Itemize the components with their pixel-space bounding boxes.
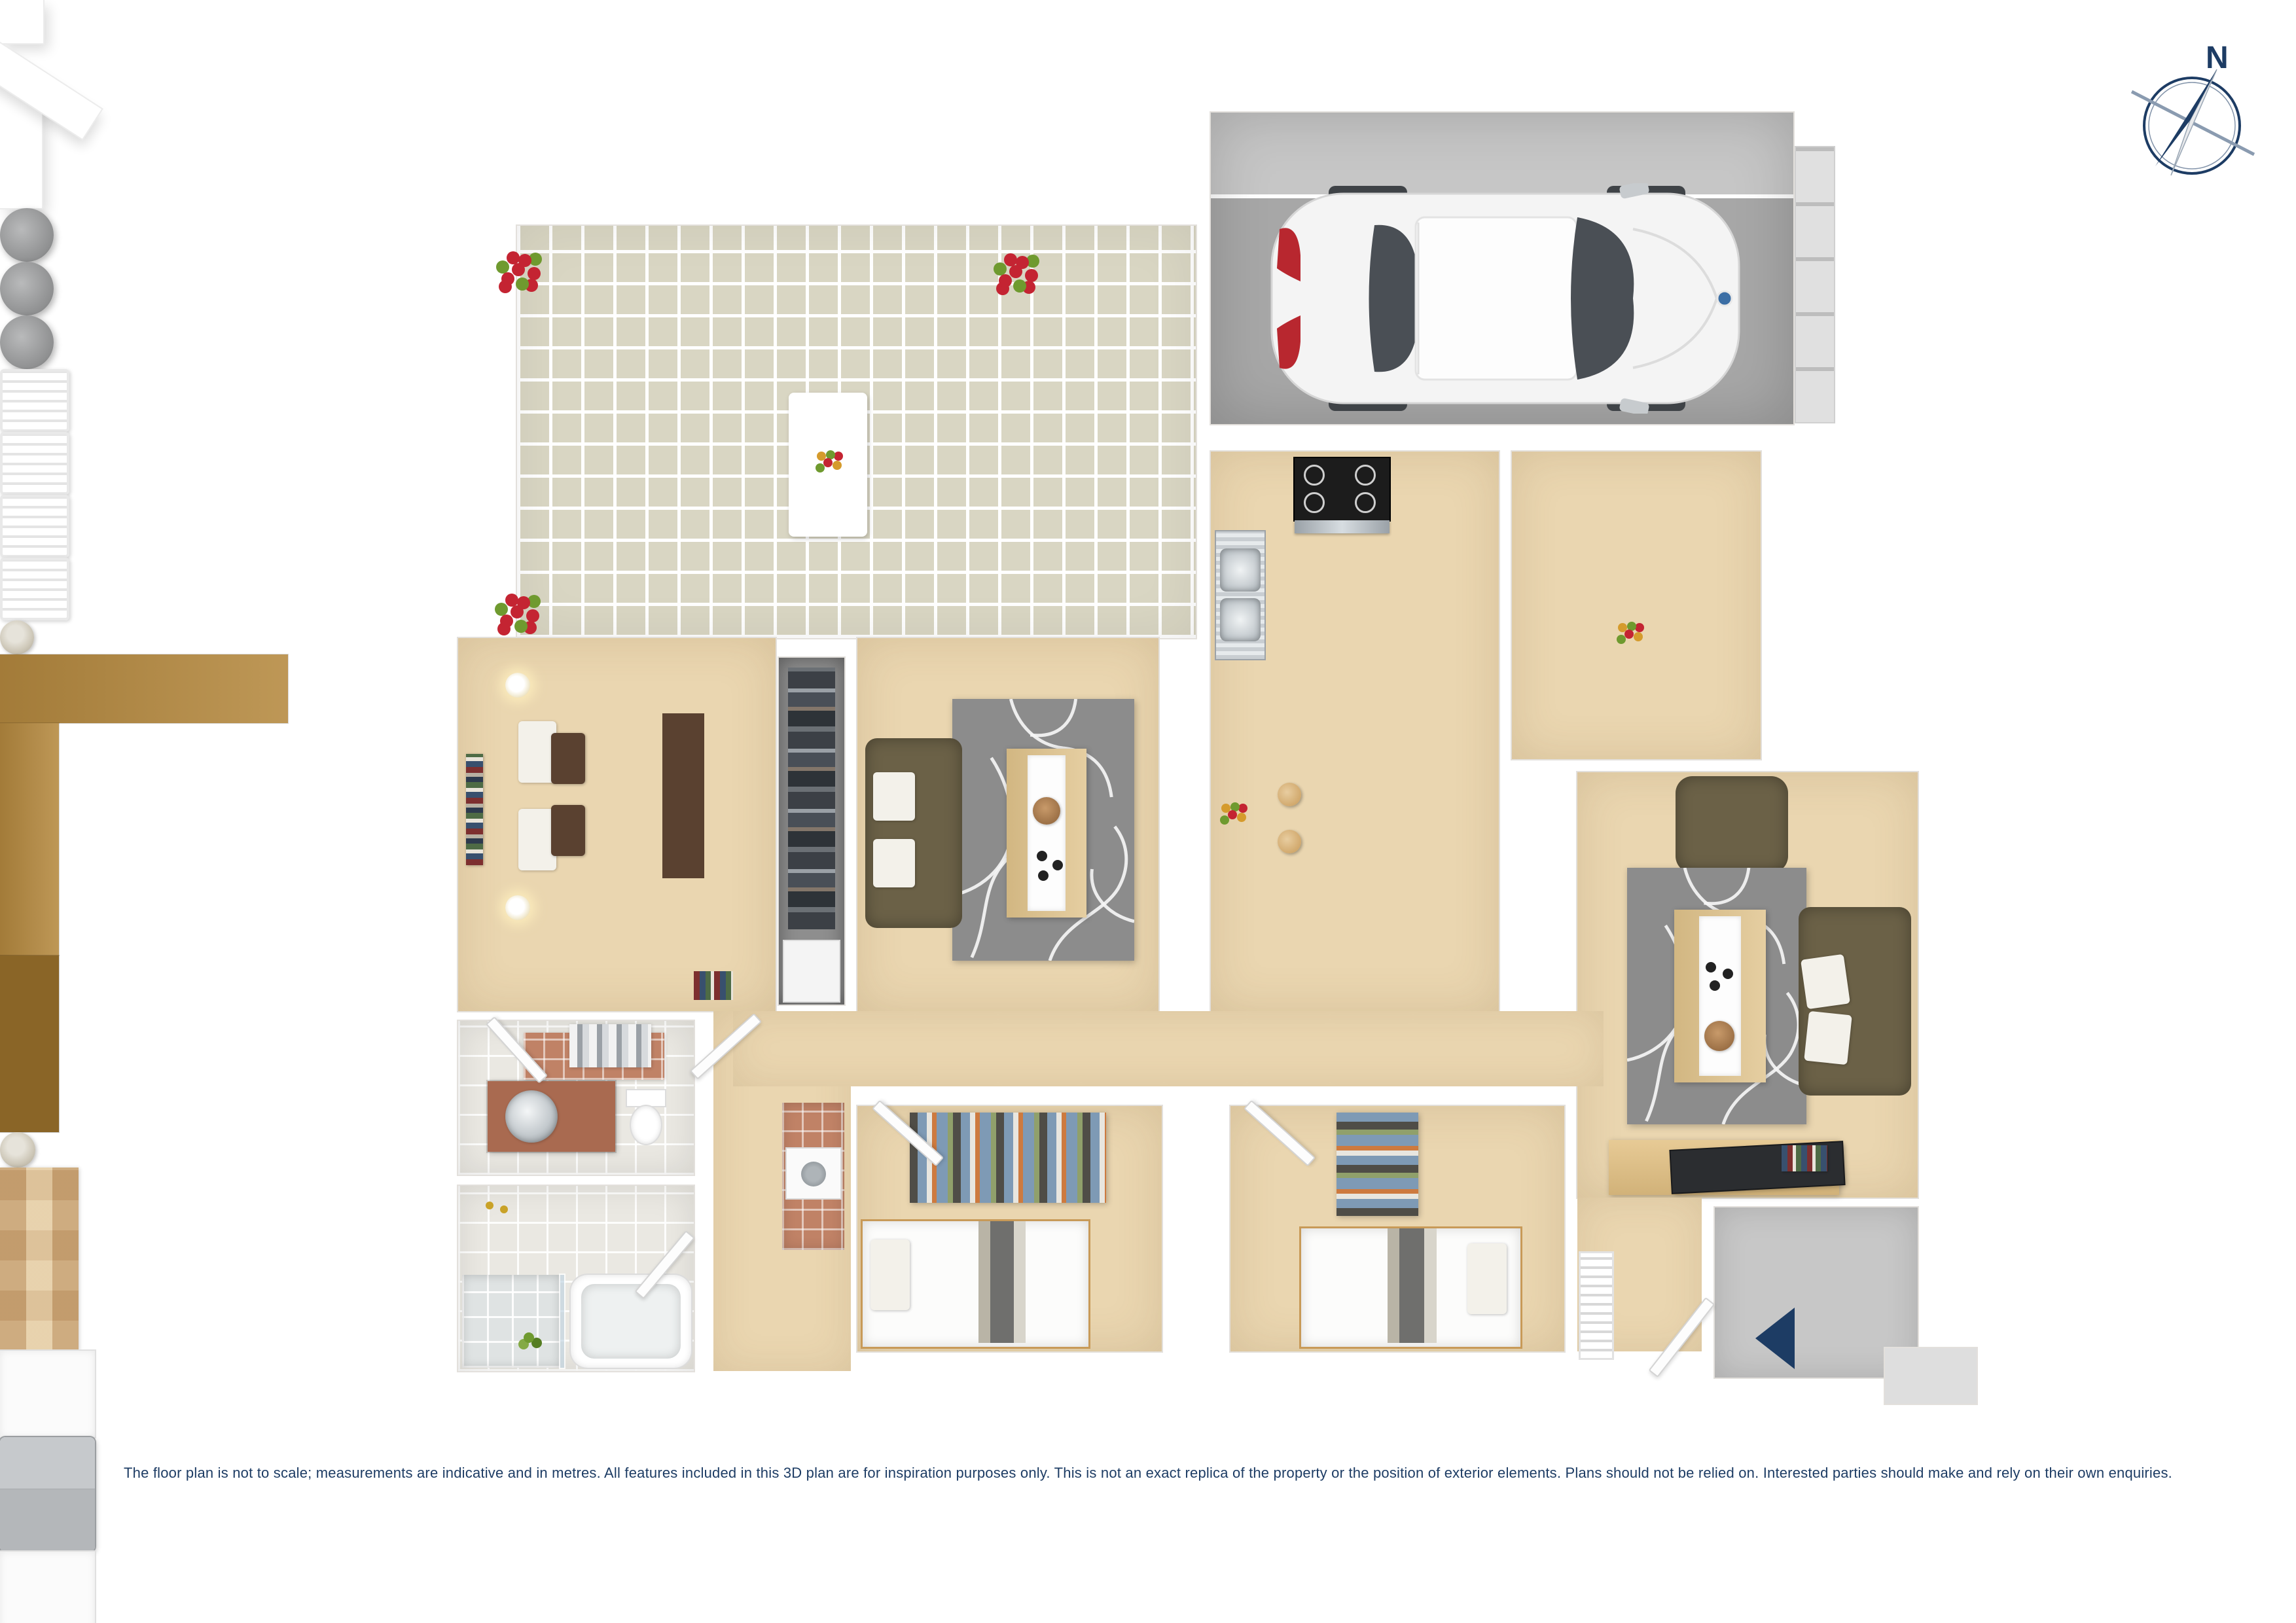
flower-pot bbox=[0, 315, 54, 369]
kitchen-sink bbox=[1216, 531, 1265, 659]
bar-stool bbox=[1278, 783, 1301, 806]
fruit-icon bbox=[1228, 810, 1237, 819]
bedside-lamp bbox=[505, 673, 530, 698]
fridge bbox=[0, 1437, 95, 1552]
fruit-bowl bbox=[0, 1132, 35, 1168]
books-icon bbox=[694, 971, 733, 1000]
compass-needle-dark bbox=[2155, 69, 2217, 166]
sofa-cushion bbox=[1804, 1011, 1852, 1065]
outdoor-chair bbox=[0, 432, 69, 495]
pantry-cabinet bbox=[0, 1552, 95, 1623]
sink-basin bbox=[1220, 598, 1261, 641]
kitchen-counter-left bbox=[0, 723, 59, 955]
tap-icon bbox=[486, 1202, 493, 1209]
decor-shag-ball bbox=[1704, 1021, 1734, 1051]
flowers-icon bbox=[511, 605, 524, 618]
compass: N bbox=[2128, 18, 2266, 195]
bathtub-inner bbox=[581, 1284, 681, 1359]
kitchen-counter-top bbox=[0, 654, 288, 723]
flower-pot bbox=[0, 262, 54, 315]
robe-mirror-door bbox=[784, 941, 839, 1001]
hanging-clothes bbox=[788, 668, 835, 929]
outdoor-chair bbox=[0, 495, 69, 558]
cooktop bbox=[1295, 458, 1390, 520]
flowers-icon bbox=[1009, 265, 1022, 278]
outdoor-chair bbox=[0, 369, 69, 432]
bed-stripe bbox=[978, 1221, 1026, 1343]
hallway bbox=[733, 1011, 1604, 1086]
fruit-icon bbox=[1624, 630, 1634, 639]
master-bedroom bbox=[458, 638, 776, 1011]
pantry-cabinet bbox=[0, 1351, 95, 1437]
washer-door-icon bbox=[801, 1162, 826, 1186]
north-label: N bbox=[2206, 41, 2229, 75]
rangehood bbox=[1295, 520, 1390, 533]
kitchen-island-bench bbox=[0, 955, 59, 1132]
sofa-cushion bbox=[873, 772, 915, 821]
toilet bbox=[627, 1090, 665, 1106]
flower-pot bbox=[0, 208, 54, 262]
sink-basin bbox=[1220, 548, 1261, 592]
fruit-icon bbox=[823, 458, 833, 467]
bedroom-3-rug bbox=[1336, 1113, 1418, 1216]
sofa-cushion bbox=[1801, 954, 1850, 1009]
pergola-post-cap bbox=[0, 0, 43, 43]
outdoor-chair bbox=[0, 558, 69, 620]
car bbox=[1266, 183, 1744, 414]
pillow bbox=[870, 1240, 910, 1310]
dining-room bbox=[1512, 452, 1761, 759]
decor-cups bbox=[1037, 851, 1047, 861]
table-runner bbox=[1699, 916, 1741, 1076]
linen-closet-louvre-door bbox=[1579, 1251, 1614, 1360]
kitchen-mat bbox=[0, 1168, 79, 1351]
floor-plan-page: N The floor plan is not to scale; measur… bbox=[0, 0, 2296, 1623]
shower-curtain bbox=[569, 1024, 651, 1067]
sofa bbox=[865, 738, 962, 928]
entry-arrow-icon bbox=[1755, 1308, 1795, 1369]
pillow-brown bbox=[551, 805, 585, 856]
flowers-icon bbox=[512, 263, 525, 276]
shower-screen bbox=[560, 1275, 564, 1368]
sofa-cushion bbox=[873, 839, 915, 887]
disclaimer-text: The floor plan is not to scale; measurem… bbox=[0, 1465, 2296, 1482]
burner-icon bbox=[1304, 492, 1325, 513]
armchair bbox=[1676, 776, 1788, 873]
toilet-bowl bbox=[631, 1106, 661, 1144]
basin bbox=[505, 1090, 558, 1143]
shower bbox=[462, 1275, 560, 1368]
pillow-brown bbox=[551, 733, 585, 784]
pillow bbox=[1467, 1243, 1507, 1314]
table-runner bbox=[1028, 755, 1066, 911]
washing-machine bbox=[787, 1149, 840, 1198]
bedside-lamp bbox=[505, 895, 530, 920]
burner-icon bbox=[1355, 492, 1376, 513]
burner-icon bbox=[1355, 465, 1376, 486]
garage-door bbox=[1796, 147, 1834, 422]
decor-books bbox=[1782, 1145, 1827, 1171]
fruit-bowl bbox=[0, 620, 34, 654]
decor-shag-ball bbox=[1033, 797, 1060, 825]
plant-icon bbox=[524, 1332, 534, 1343]
burner-icon bbox=[1304, 465, 1325, 486]
bar-stool bbox=[1278, 830, 1301, 853]
bed-stripe bbox=[1388, 1228, 1437, 1343]
bookshelf bbox=[466, 754, 483, 865]
bed-runner bbox=[662, 713, 704, 878]
decor-cups bbox=[1706, 962, 1716, 972]
porch-step bbox=[1885, 1348, 1977, 1404]
